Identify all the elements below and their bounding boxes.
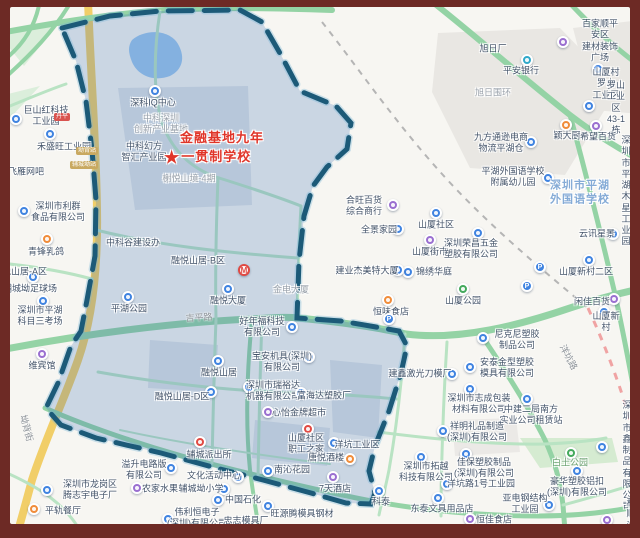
nanqin-garden-label[interactable]: 南沁花园 (274, 464, 310, 475)
dongtai-stationery-label[interactable]: 东泰文具用品店 (410, 503, 473, 514)
rongyue-shanju-icon[interactable] (212, 355, 224, 367)
rongyue-shanju-d-label[interactable]: 融悦山居-D区 (155, 391, 210, 402)
pingan-bank-label[interactable]: 平安银行 (503, 65, 539, 76)
zhongkegu-construction-office-label[interactable]: 中科谷建设办 (106, 237, 160, 248)
heshengwang-industrial-park-icon[interactable] (44, 128, 56, 140)
jinxiu-huating-label[interactable]: 锦绣华庭 (416, 266, 452, 277)
xinyi-supermarket-label[interactable]: 心怡金牌超市 (272, 407, 326, 418)
7days-inn-icon[interactable] (327, 471, 339, 483)
jianxin-laser-mould-label[interactable]: 建鑫激光刀模厂 (388, 368, 451, 379)
xiwang-department-store-icon[interactable] (590, 120, 602, 132)
pinghu-foreign-language-kindergarten-label[interactable]: 平湖外国语学校 附属幼儿园 (481, 166, 544, 189)
feiyan-internet-cafe-label[interactable]: 飞雁网吧 (10, 166, 44, 177)
jindian-building-label[interactable]: 金电大厦 (273, 284, 309, 295)
heshun-goods-icon[interactable] (601, 514, 613, 524)
xiwang-department-store-label[interactable]: 希望百货 (580, 131, 616, 142)
jushanhong-industrial-park-icon[interactable] (10, 113, 22, 125)
yunxun-xingjing-label[interactable]: 云讯星景 (579, 228, 615, 239)
qingfeng-pigeon-label[interactable]: 青锋乳鸽 (28, 246, 64, 257)
star-icon: ★ (164, 148, 181, 167)
ruiyuda-machinery-label[interactable]: 深圳市瑞裕达 机器有限公司 (246, 380, 300, 403)
nanqin-garden-icon[interactable] (262, 465, 274, 477)
pinghu-driving-test-site-label[interactable]: 深圳市平湖 科目三考场 (17, 305, 62, 328)
nikeni-plastics-icon[interactable] (477, 332, 489, 344)
rongyue-shanju-a-label[interactable]: 融悦山居-A区 (10, 266, 47, 277)
fucheng-police-station-label[interactable]: 辅城派出所 (186, 449, 231, 460)
map-inner: 巨山红科技 工业园禾盛旺工业园飞雁网吧深圳市利群 食品有限公司青锋乳鸽辅城坳足球… (10, 7, 630, 524)
pinghu-park-label[interactable]: 平湖公园 (111, 303, 147, 314)
shanxia-park-label[interactable]: 山厦公园 (445, 295, 481, 306)
haohua-plastics-aluminum-label[interactable]: 豪华塑胶铝扣 (深圳)有限公司 (547, 476, 607, 499)
pinggui-restaurant-icon[interactable] (28, 503, 40, 515)
hewang-department-store-label[interactable]: 合旺百货 综合商行 (346, 195, 382, 218)
rongyue-shanju-b-label[interactable]: 融悦山居-B区 (171, 255, 225, 266)
shanxia-new-village-2-label[interactable]: 山厦新村二区 (559, 266, 613, 277)
road-badge: 辅城坳站 (70, 161, 98, 169)
tengzhiyu-electronics-label[interactable]: 深圳市龙岗区 腾志宇电子厂 (63, 479, 117, 502)
school-name-line2: 一贯制学校 (181, 149, 251, 164)
ketai-icon[interactable] (373, 485, 385, 497)
fuchengao-primary-school-label[interactable]: 辅城坳小学 (178, 483, 223, 494)
xin-products-co-label[interactable]: 深圳市鑫 制品有限公司 (621, 400, 631, 513)
baijiashun-building-materials-label[interactable]: 百家顺平安区 建材装饰广场 (580, 19, 620, 64)
shenke-iq-center-label[interactable]: 深科IQ中心 (130, 97, 176, 108)
ketai-label[interactable]: 科泰 (372, 496, 390, 507)
shanxia-new-village-label[interactable]: 山厦新村 (589, 311, 623, 334)
road-name-label: 吉平路 (185, 310, 213, 324)
hengwei-food-store-icon[interactable] (382, 294, 394, 306)
liqun-food-co-label[interactable]: 深圳市利群 食品有限公司 (31, 201, 85, 224)
rongchang-hardware-plastics-label[interactable]: 深圳荣昌五金 塑胶有限公司 (444, 238, 498, 261)
hengjia-food-store-label[interactable]: 恒佳食店 (476, 514, 512, 524)
road-badge: 坳背站 (76, 147, 98, 155)
road-badge: 丹平 (54, 113, 70, 121)
heshun-goods-label[interactable]: 和顺洋货 (626, 498, 630, 525)
luoshan-industrial-43-icon[interactable] (583, 100, 595, 112)
school-marker[interactable]: 金融基地九年 ★一贯制学校 (164, 129, 264, 169)
shanxia-park-icon[interactable] (457, 283, 469, 295)
yadian-steel-structure-label[interactable]: 亚电钢结构 工业园 (502, 493, 547, 516)
nongjia-fruit-label[interactable]: 农家水果 (142, 483, 178, 494)
wangyuanteng-mould-steel-label[interactable]: 旺源腾模具钢材 (270, 508, 333, 519)
parking-1-icon[interactable]: P (383, 313, 395, 325)
sinopec-icon[interactable] (212, 494, 224, 506)
xuri-weihuan-area-label[interactable]: 旭日围环 (475, 87, 511, 98)
antai-mould-icon[interactable] (464, 361, 476, 373)
zhongjian-leasing-station-label[interactable]: 中建二局南方 实业公司租赁站 (499, 404, 562, 427)
haonianfu-tech-icon[interactable] (286, 321, 298, 333)
pinghu-foreign-language-school-area-label[interactable]: 深圳市平湖 外国语学校 (550, 179, 610, 207)
zhongke-huanfang-park-label[interactable]: 中科幻方 智汇产业园 (121, 141, 166, 164)
jianye-jiemeite-building-label[interactable]: 建业杰美特大厦 (335, 265, 398, 276)
fucheng-police-station-icon[interactable] (194, 436, 206, 448)
tangyue-restaurant-icon[interactable] (344, 453, 356, 465)
haonianfu-tech-label[interactable]: 好年福科技 有限公司 (239, 316, 284, 339)
shenke-iq-center-icon[interactable] (149, 85, 161, 97)
xiangming-gifts-label[interactable]: 祥明礼品制造 (深圳)有限公司 (447, 421, 507, 444)
shanxia-community-label[interactable]: 山厦社区 (418, 219, 454, 230)
baoan-machinery-label[interactable]: 宝安机具(深圳) 有限公司 (252, 351, 312, 374)
cultural-activity-center-label[interactable]: 文化活动中心 (187, 470, 241, 481)
luoshan-industrial-43-label[interactable]: 罗山工业区 43-1栋 (604, 80, 628, 136)
weiliheng-electronics-label[interactable]: 伟利恒电子 (深圳)有限公司 (167, 507, 227, 524)
antai-mould-label[interactable]: 安泰金型塑胶 模具有限公司 (480, 357, 534, 380)
yangkeng-industrial-zone-label[interactable]: 洋坑工业区 (334, 439, 379, 450)
parking-2-icon[interactable]: P (534, 261, 546, 273)
yingdachu-restaurant-icon[interactable] (560, 119, 572, 131)
map-viewport[interactable]: 巨山红科技 工业园禾盛旺工业园飞雁网吧深圳市利群 食品有限公司青锋乳鸽辅城坳足球… (10, 7, 630, 524)
zhongzhi-mould-factory-label[interactable]: 忠志模具厂 (223, 515, 268, 524)
quanjing-garden-label[interactable]: 全景家园 (361, 224, 397, 235)
yisheng-circuit-board-label[interactable]: 溢升电路版 有限公司 (121, 459, 166, 482)
jiufang-logistics-label[interactable]: 九方通逊电商 物流平湖仓 (474, 132, 528, 155)
shanxia-new-village-2-icon[interactable] (583, 254, 595, 266)
pinggui-restaurant-label[interactable]: 平轨餐厅 (45, 505, 81, 516)
nikeni-plastics-label[interactable]: 尼克尼塑胶 制品公司 (494, 329, 539, 352)
liqun-food-co-icon[interactable] (18, 205, 30, 217)
poi-layer: 巨山红科技 工业园禾盛旺工业园飞雁网吧深圳市利群 食品有限公司青锋乳鸽辅城坳足球… (10, 7, 630, 524)
dongtai-stationery-icon[interactable] (432, 492, 444, 504)
wei-hotel-icon[interactable] (36, 348, 48, 360)
shanxia-market-icon[interactable] (424, 234, 436, 246)
tengzhiyu-electronics-icon[interactable] (41, 484, 53, 496)
shanxia-market-label[interactable]: 山厦街市 (412, 246, 448, 257)
qingfeng-pigeon-icon[interactable] (41, 233, 53, 245)
parking-3-icon[interactable]: P (521, 280, 533, 292)
sinopec-label[interactable]: 中国石化 (225, 494, 261, 505)
baijiashun-building-materials-icon[interactable] (557, 36, 569, 48)
hewang-department-store-icon[interactable] (387, 199, 399, 211)
school-name-line1: 金融基地九年 (164, 129, 264, 147)
muxing-industrial-park-label[interactable]: 深圳市平湖 木星工业园 (619, 135, 630, 248)
road-name-label: 洋坑路 (557, 342, 581, 372)
pinghu-park-icon[interactable] (122, 291, 134, 303)
tangyue-restaurant-label[interactable]: 唐悦酒楼 (308, 452, 344, 463)
yisheng-circuit-board-icon[interactable] (165, 462, 177, 474)
metro-station-icon[interactable]: M (238, 264, 250, 276)
shanxia-community-icon[interactable] (430, 207, 442, 219)
rongyue-building-icon[interactable] (222, 283, 234, 295)
fuchengao-football-field-label[interactable]: 辅城坳足球场 (10, 283, 57, 294)
xieyue-shanjing-4-label[interactable]: 榭悦山境-4期 (162, 173, 215, 184)
map-frame: 巨山红科技 工业园禾盛旺工业园飞雁网吧深圳市利群 食品有限公司青锋乳鸽辅城坳足球… (0, 0, 640, 538)
pingan-bank-icon[interactable] (521, 54, 533, 66)
rongyue-building-label[interactable]: 融悦大厦 (210, 295, 246, 306)
fuhaida-plastics-label[interactable]: 富海达塑胶厂 (297, 390, 351, 401)
xin-products-co-icon[interactable] (596, 441, 608, 453)
wei-hotel-label[interactable]: 维宾馆 (28, 360, 55, 371)
hengjia-food-store-icon[interactable] (464, 513, 476, 524)
road-name-label: 坳背街 (17, 413, 37, 442)
yingdachu-restaurant-label[interactable]: 颖大厨 (553, 130, 580, 141)
xuri-factory-label[interactable]: 旭日厂 (479, 43, 506, 54)
yangkeng-road-1-industrial-label[interactable]: 洋坑路1号工业园 (447, 478, 515, 489)
rongyue-shanju-label[interactable]: 融悦山居 (201, 367, 237, 378)
jiabao-plastics-label[interactable]: 佳保塑胶制品 (深圳)有限公司 (454, 457, 514, 480)
7days-inn-label[interactable]: 7天酒店 (319, 483, 351, 494)
baitu-park-label[interactable]: 白土公园 (552, 457, 588, 468)
